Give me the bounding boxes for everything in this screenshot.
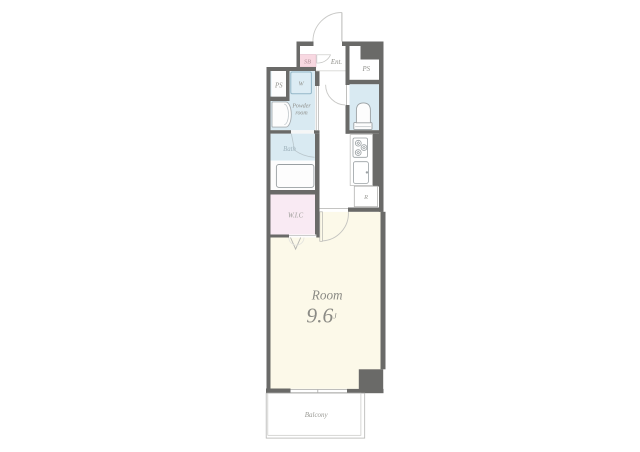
svg-text:PS: PS bbox=[362, 66, 371, 73]
svg-text:9.6J: 9.6J bbox=[306, 304, 337, 328]
svg-text:W.I.C: W.I.C bbox=[288, 212, 304, 219]
svg-text:room: room bbox=[295, 111, 307, 117]
svg-text:Ent.: Ent. bbox=[330, 59, 342, 66]
svg-text:Room: Room bbox=[311, 288, 343, 303]
svg-text:Bath: Bath bbox=[283, 146, 296, 153]
svg-text:Powder: Powder bbox=[291, 104, 311, 110]
svg-text:PS: PS bbox=[274, 83, 283, 90]
svg-text:SB: SB bbox=[304, 58, 311, 65]
svg-text:Balcony: Balcony bbox=[305, 411, 329, 419]
svg-text:R: R bbox=[363, 194, 368, 201]
svg-text:W: W bbox=[298, 81, 304, 88]
